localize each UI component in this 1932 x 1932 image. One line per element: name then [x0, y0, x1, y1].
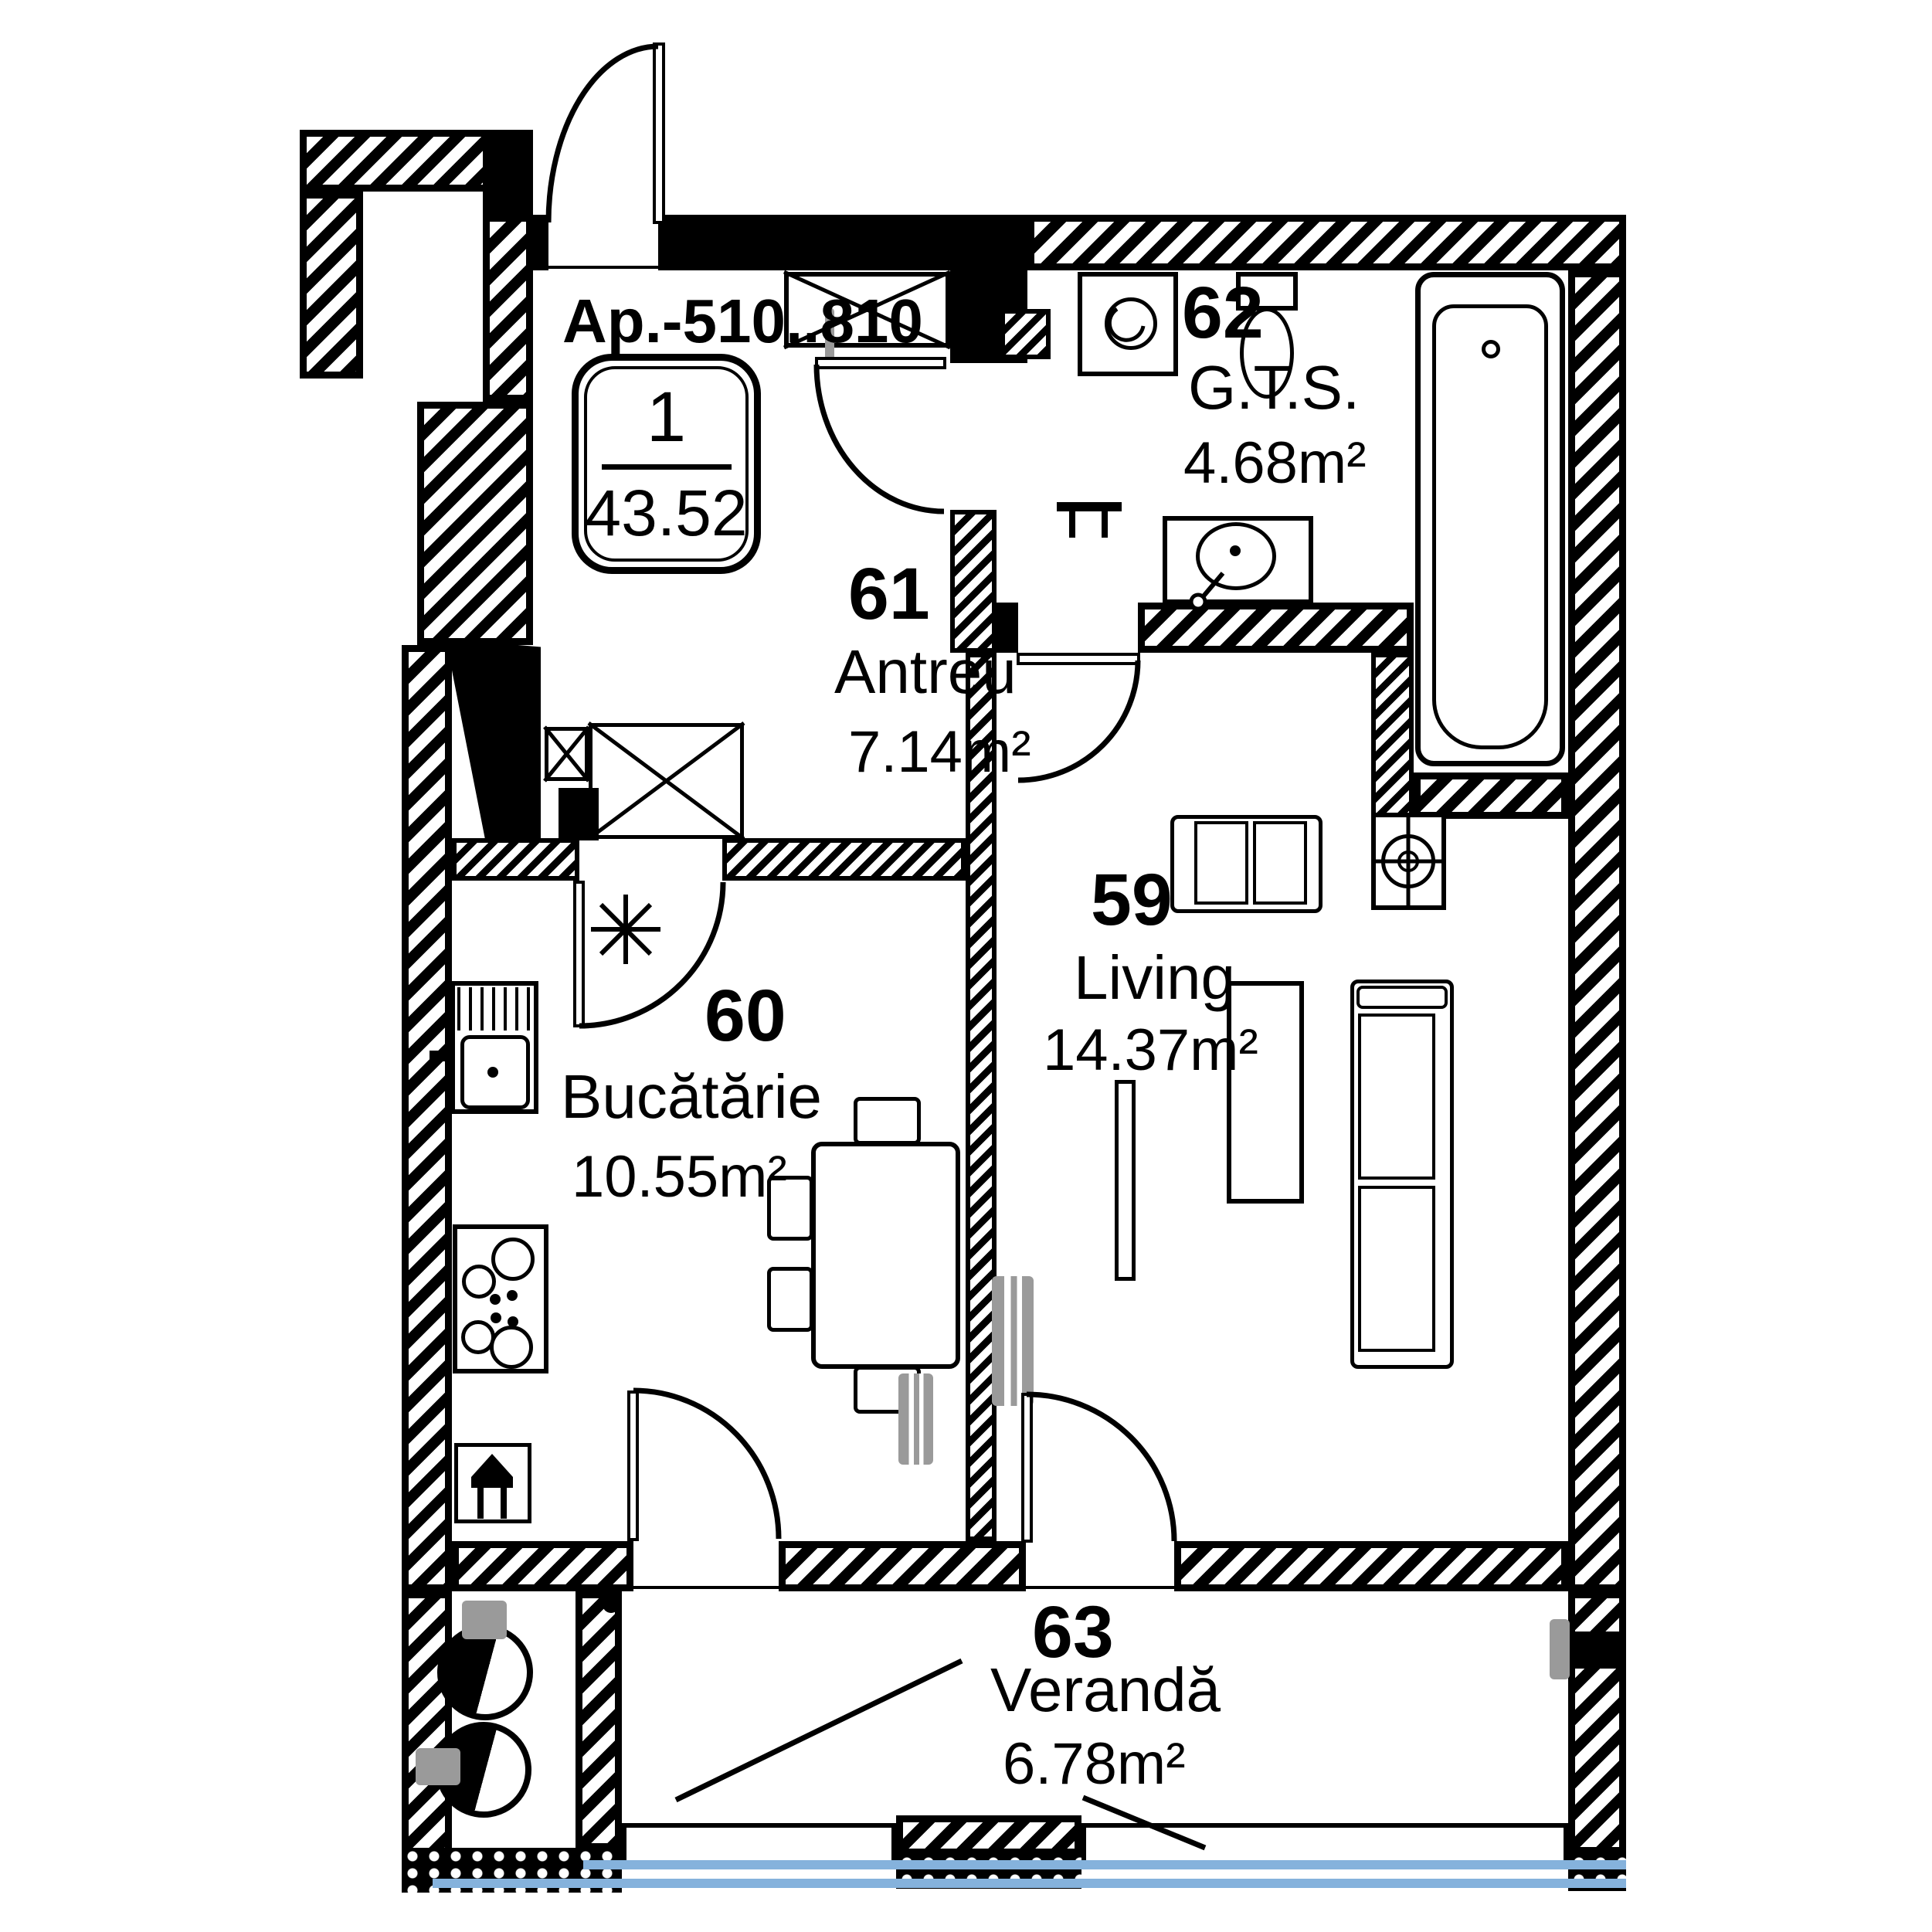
washing-machine-drum-icon — [1105, 297, 1157, 350]
sofa-right-cushion-top — [1356, 986, 1448, 1009]
kitchen-veranda-door-swing-icon — [633, 1390, 779, 1539]
wall-tub-alcove-west — [1371, 653, 1414, 819]
entrance-door-leaf — [653, 42, 665, 224]
wall-veranda-bottom-pier — [896, 1815, 1081, 1856]
wall-left-lower — [402, 645, 452, 1591]
room-veranda-name: Verandă — [990, 1659, 1221, 1721]
duct-connector-top — [462, 1601, 507, 1639]
wall-living-north-b — [1138, 603, 1414, 653]
wall-south-pier — [779, 1541, 1026, 1591]
floor-plan: Ap.-510..810 1 43.52 61 Antreu 7.14m² 62… — [0, 0, 1932, 1932]
kitchen-drainboard — [457, 987, 531, 1031]
gas-appliance-icon — [454, 1443, 531, 1523]
wardrobe-small-icon — [545, 727, 589, 781]
room-hallway-name: Antreu — [834, 641, 1017, 703]
towel-rail-leg-left — [1069, 511, 1075, 538]
wall-kitchen-south — [452, 1541, 633, 1591]
radiator-veranda-icon — [1550, 1619, 1570, 1679]
wall-utility-east — [576, 1591, 622, 1850]
wardrobe-large-icon — [589, 723, 744, 839]
kitchen-door-leaf — [573, 881, 585, 1027]
room-kitchen-area: 10.55m² — [572, 1148, 787, 1207]
duct-connector-left — [416, 1748, 460, 1785]
room-kitchen-number: 60 — [705, 980, 786, 1053]
wall-left-upper — [483, 215, 533, 402]
equipment-circle-inner — [1397, 851, 1419, 872]
room-bathroom-number: 62 — [1182, 277, 1264, 350]
wall-top-right — [1027, 215, 1626, 270]
badge-total-area: 43.52 — [585, 476, 747, 551]
wall-kitchen-living — [966, 653, 997, 1541]
wall-right-veranda — [1568, 1591, 1626, 1854]
sofa-top-cushion-2 — [1253, 821, 1307, 905]
room-bathroom-area: 4.68m² — [1183, 434, 1367, 493]
glazing-strip-lower — [433, 1879, 1626, 1888]
radiator-living-icon — [992, 1276, 1034, 1406]
kitchen-sink-drain — [487, 1067, 498, 1078]
burner-top-left — [462, 1265, 496, 1299]
sofa-right-cushion-1 — [1358, 1014, 1435, 1180]
black-shaft-polygon — [446, 639, 541, 842]
window-open-indicator-left — [676, 1661, 962, 1800]
apartment-title-text: Ap.-510..810 — [562, 287, 923, 355]
apartment-badge: 1 43.52 — [572, 354, 761, 574]
gas-asterisk-icon — [591, 895, 660, 964]
room-kitchen-name: Bucătărie — [561, 1066, 822, 1128]
badge-divider — [602, 464, 732, 470]
outer-pier-left — [300, 192, 363, 379]
apartment-title: Ap.-510..810 — [562, 290, 923, 352]
radiator-kitchen-icon — [898, 1373, 933, 1465]
wall-kitchen-north-b — [722, 838, 966, 881]
survey-dot — [603, 1596, 620, 1613]
wall-bathroom-west-bottom — [950, 510, 997, 653]
room-living-area: 14.37m² — [1043, 1021, 1258, 1080]
kitchen-door-swing-icon — [579, 882, 723, 1026]
bathroom-sink-icon — [1196, 522, 1276, 590]
sofa-right-cushion-2 — [1358, 1186, 1435, 1352]
badge-rooms-count: 1 — [647, 377, 686, 458]
console-icon — [1115, 1080, 1136, 1281]
kitchen-veranda-door-leaf — [627, 1390, 639, 1541]
dining-table-icon — [811, 1142, 960, 1369]
living-door-leaf — [1017, 653, 1140, 665]
burner-bottom-right — [490, 1326, 533, 1369]
living-veranda-door-swing-icon — [1027, 1394, 1174, 1541]
kitchen-faucet-icon — [430, 1051, 454, 1061]
sofa-top-cushion-1 — [1194, 821, 1248, 905]
wall-left-middle — [417, 402, 533, 645]
glazing-strip-upper — [583, 1860, 1626, 1869]
bathroom-door-swing-icon — [817, 365, 944, 511]
room-hallway-area: 7.14m² — [848, 723, 1031, 782]
room-living-name: Living — [1074, 947, 1235, 1009]
duct-box — [559, 788, 599, 840]
coffee-table-icon — [1227, 981, 1304, 1204]
living-door-swing-icon — [1018, 660, 1138, 780]
wall-right — [1568, 270, 1626, 1591]
bathroom-door-leaf — [815, 357, 946, 369]
bathtub-drain-icon — [1482, 340, 1500, 358]
plumbing-riser-box — [1000, 309, 1051, 359]
room-hallway-number: 61 — [848, 558, 930, 631]
chair-top — [854, 1097, 921, 1145]
room-veranda-area: 6.78m² — [1003, 1735, 1186, 1794]
wall-kitchen-north-a — [452, 838, 579, 881]
wall-tub-alcove-south — [1414, 772, 1568, 819]
bathtub-inner — [1432, 304, 1548, 749]
living-veranda-door-leaf — [1021, 1393, 1033, 1543]
apartment-badge-inner: 1 43.52 — [584, 366, 749, 562]
burner-top-right — [491, 1238, 535, 1281]
chair-left-2 — [767, 1267, 813, 1332]
room-living-number: 59 — [1091, 864, 1173, 937]
wall-living-south — [1174, 1541, 1568, 1591]
wall-tie-right — [1568, 1632, 1624, 1669]
sink-drain-dot — [1230, 545, 1241, 556]
towel-rail-leg-right — [1102, 511, 1108, 538]
room-bathroom-name: G.T.S. — [1188, 357, 1360, 419]
entrance-door-swing-icon — [548, 46, 658, 222]
towel-rail-icon — [1057, 502, 1122, 511]
